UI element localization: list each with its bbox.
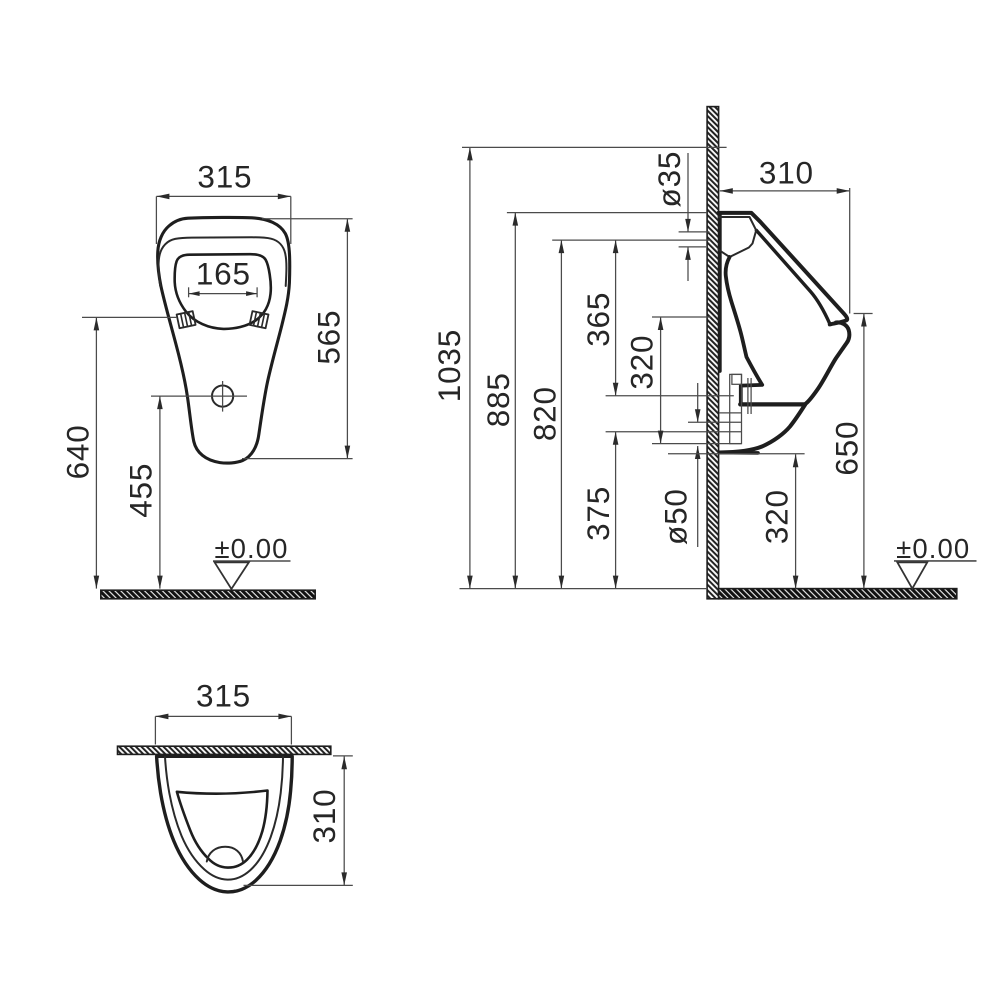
svg-text:640: 640 [59,424,95,479]
svg-text:650: 650 [828,421,864,476]
svg-text:455: 455 [123,463,159,518]
svg-text:320: 320 [758,489,794,544]
svg-text:565: 565 [311,310,347,365]
svg-text:165: 165 [196,256,251,292]
svg-text:885: 885 [480,372,516,427]
svg-text:ø50: ø50 [658,488,694,545]
svg-text:365: 365 [580,292,616,347]
svg-text:315: 315 [197,159,252,195]
svg-text:375: 375 [580,486,616,541]
svg-text:310: 310 [306,789,342,844]
svg-text:±0.00: ±0.00 [214,533,288,564]
svg-text:ø35: ø35 [651,151,687,208]
svg-text:±0.00: ±0.00 [896,533,970,564]
svg-text:310: 310 [759,155,814,191]
svg-text:1035: 1035 [431,329,467,402]
svg-text:320: 320 [623,335,659,390]
svg-text:315: 315 [196,678,251,714]
svg-text:820: 820 [526,386,562,441]
